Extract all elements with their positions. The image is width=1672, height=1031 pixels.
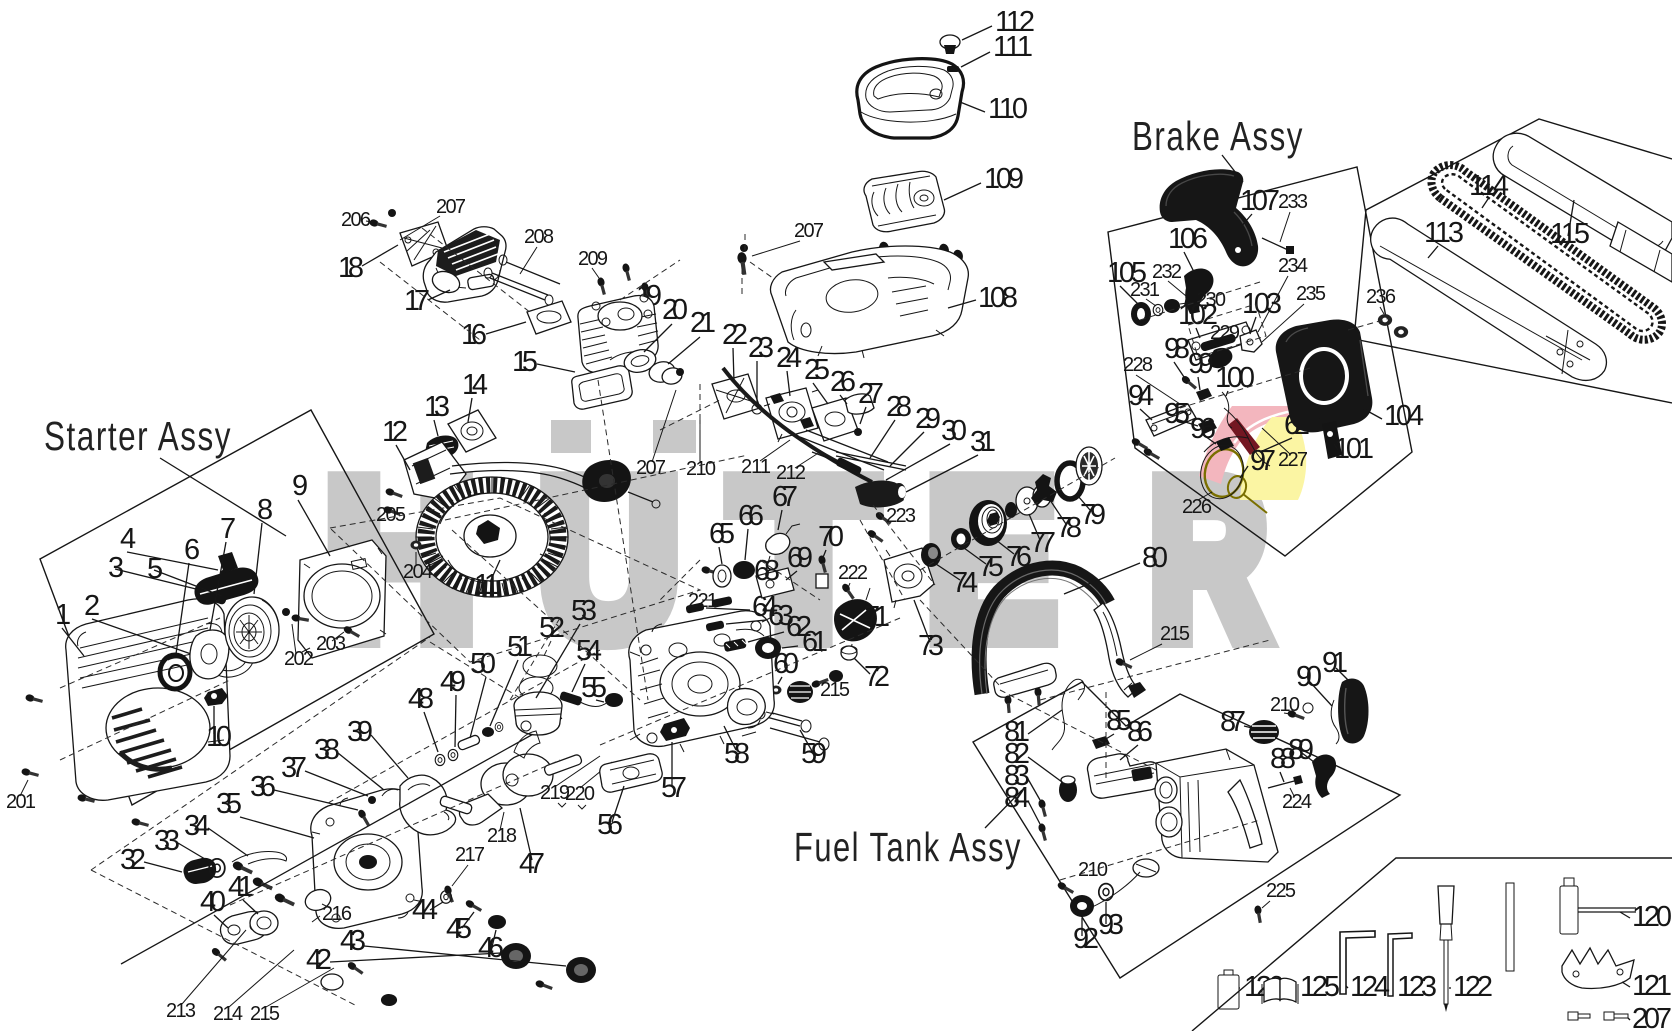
svg-text:6: 6 (184, 534, 200, 566)
svg-text:10: 10 (206, 721, 232, 753)
svg-text:37: 37 (281, 752, 307, 784)
svg-text:215: 215 (1160, 623, 1190, 645)
svg-text:9: 9 (292, 470, 308, 502)
svg-text:224: 224 (1282, 791, 1312, 813)
svg-text:13: 13 (424, 391, 450, 423)
svg-text:215: 215 (250, 1003, 280, 1025)
svg-text:222: 222 (838, 562, 868, 584)
svg-text:207: 207 (1632, 1003, 1672, 1031)
svg-text:122: 122 (1453, 971, 1493, 1003)
svg-text:120: 120 (1632, 901, 1672, 933)
svg-text:110: 110 (988, 93, 1028, 125)
svg-text:68: 68 (754, 555, 780, 587)
svg-text:Brake Assy: Brake Assy (1132, 113, 1304, 159)
svg-text:72: 72 (864, 661, 890, 693)
svg-text:221: 221 (688, 590, 718, 612)
svg-text:15: 15 (512, 346, 538, 378)
svg-text:89: 89 (1288, 734, 1314, 766)
svg-text:57: 57 (661, 772, 687, 804)
svg-text:223: 223 (886, 505, 916, 527)
svg-text:49: 49 (440, 666, 466, 698)
svg-text:225: 225 (1266, 880, 1296, 902)
svg-text:22: 22 (722, 319, 748, 351)
svg-text:67: 67 (772, 481, 798, 513)
svg-text:229: 229 (1210, 322, 1240, 344)
svg-text:65: 65 (709, 518, 735, 550)
svg-text:90: 90 (1296, 661, 1322, 693)
svg-text:56: 56 (597, 809, 623, 841)
svg-text:30: 30 (941, 415, 967, 447)
svg-text:47: 47 (519, 848, 545, 880)
svg-text:2: 2 (84, 590, 100, 622)
svg-text:44: 44 (412, 894, 438, 926)
svg-text:26: 26 (830, 366, 856, 398)
svg-text:28: 28 (886, 391, 912, 423)
svg-text:32: 32 (120, 844, 146, 876)
svg-text:36: 36 (250, 771, 276, 803)
svg-text:111: 111 (993, 31, 1033, 63)
svg-text:48: 48 (408, 683, 434, 715)
svg-text:104: 104 (1384, 400, 1424, 432)
svg-text:73: 73 (918, 630, 944, 662)
svg-text:53: 53 (571, 595, 597, 627)
svg-text:69: 69 (787, 542, 813, 574)
svg-text:108: 108 (978, 282, 1018, 314)
svg-text:226: 226 (1182, 496, 1212, 518)
svg-text:107: 107 (1240, 185, 1280, 217)
svg-text:84: 84 (1004, 782, 1030, 814)
svg-text:1: 1 (55, 599, 71, 631)
svg-text:54: 54 (576, 635, 602, 667)
svg-text:87: 87 (1220, 706, 1246, 738)
svg-text:7: 7 (220, 513, 236, 545)
svg-text:91: 91 (1322, 647, 1348, 679)
svg-text:210: 210 (686, 458, 716, 480)
svg-text:94: 94 (1128, 380, 1154, 412)
svg-text:235: 235 (1296, 283, 1326, 305)
svg-text:109: 109 (984, 163, 1024, 195)
svg-text:45: 45 (446, 913, 472, 945)
svg-text:52: 52 (539, 612, 565, 644)
svg-text:Starter Assy: Starter Assy (44, 413, 232, 459)
svg-text:92: 92 (1073, 923, 1099, 955)
svg-text:16: 16 (461, 319, 487, 351)
svg-text:Fuel Tank Assy: Fuel Tank Assy (794, 824, 1022, 870)
svg-text:23: 23 (748, 332, 774, 364)
svg-text:217: 217 (455, 844, 485, 866)
svg-text:5: 5 (147, 553, 163, 585)
svg-text:121: 121 (1632, 970, 1672, 1002)
svg-text:31: 31 (970, 426, 996, 458)
svg-text:125: 125 (1300, 971, 1340, 1003)
svg-text:96: 96 (1190, 413, 1216, 445)
svg-text:213: 213 (166, 1000, 196, 1022)
svg-text:215: 215 (820, 679, 850, 701)
svg-text:41: 41 (228, 871, 254, 903)
svg-text:100: 100 (1215, 362, 1255, 394)
svg-text:218: 218 (487, 825, 517, 847)
svg-text:39: 39 (347, 716, 373, 748)
svg-text:18: 18 (338, 252, 364, 284)
svg-text:55: 55 (581, 672, 607, 704)
svg-text:75: 75 (978, 551, 1004, 583)
svg-text:4: 4 (120, 523, 136, 555)
svg-text:211: 211 (741, 456, 771, 478)
svg-text:207: 207 (436, 196, 466, 218)
svg-text:58: 58 (724, 738, 750, 770)
svg-text:29: 29 (915, 403, 941, 435)
svg-text:204: 204 (403, 561, 433, 583)
svg-text:206: 206 (341, 209, 371, 231)
svg-text:124: 124 (1350, 971, 1390, 1003)
svg-text:3: 3 (108, 552, 124, 584)
svg-text:236: 236 (1366, 286, 1396, 308)
svg-text:43: 43 (340, 925, 366, 957)
svg-text:66: 66 (738, 500, 764, 532)
svg-text:123: 123 (1397, 971, 1437, 1003)
svg-text:34: 34 (184, 810, 210, 842)
svg-text:33: 33 (154, 825, 180, 857)
svg-text:14: 14 (462, 369, 488, 401)
svg-text:95: 95 (1164, 398, 1190, 430)
svg-text:46: 46 (478, 932, 504, 964)
svg-text:35: 35 (216, 788, 242, 820)
svg-text:231: 231 (1130, 279, 1160, 301)
svg-text:59: 59 (801, 738, 827, 770)
svg-text:233: 233 (1278, 191, 1308, 213)
svg-text:11: 11 (474, 569, 500, 601)
svg-text:25: 25 (804, 354, 830, 386)
svg-text:80: 80 (1142, 542, 1168, 574)
svg-text:113: 113 (1424, 217, 1464, 249)
svg-text:220: 220 (565, 783, 595, 805)
svg-text:74: 74 (952, 567, 978, 599)
svg-text:106: 106 (1168, 223, 1208, 255)
svg-text:21: 21 (690, 307, 716, 339)
svg-text:8: 8 (257, 494, 273, 526)
svg-text:228: 228 (1123, 354, 1153, 376)
svg-text:202: 202 (284, 648, 314, 670)
svg-text:93: 93 (1098, 909, 1124, 941)
svg-text:17: 17 (404, 285, 430, 317)
svg-text:207: 207 (794, 220, 824, 242)
svg-text:234: 234 (1278, 255, 1308, 277)
svg-text:70: 70 (818, 521, 844, 553)
svg-text:227: 227 (1278, 449, 1308, 471)
svg-text:101: 101 (1334, 433, 1374, 465)
svg-text:27: 27 (858, 378, 884, 410)
svg-text:203: 203 (316, 633, 346, 655)
svg-text:12: 12 (382, 416, 408, 448)
svg-text:208: 208 (524, 226, 554, 248)
svg-text:51: 51 (507, 631, 533, 663)
svg-text:78: 78 (1056, 512, 1082, 544)
svg-text:86: 86 (1127, 716, 1153, 748)
svg-text:20: 20 (662, 294, 688, 326)
svg-text:77: 77 (1030, 527, 1056, 559)
svg-text:209: 209 (578, 248, 608, 270)
svg-text:98: 98 (1164, 333, 1190, 365)
svg-text:214: 214 (213, 1003, 243, 1025)
svg-text:103: 103 (1242, 288, 1282, 320)
svg-text:38: 38 (314, 734, 340, 766)
